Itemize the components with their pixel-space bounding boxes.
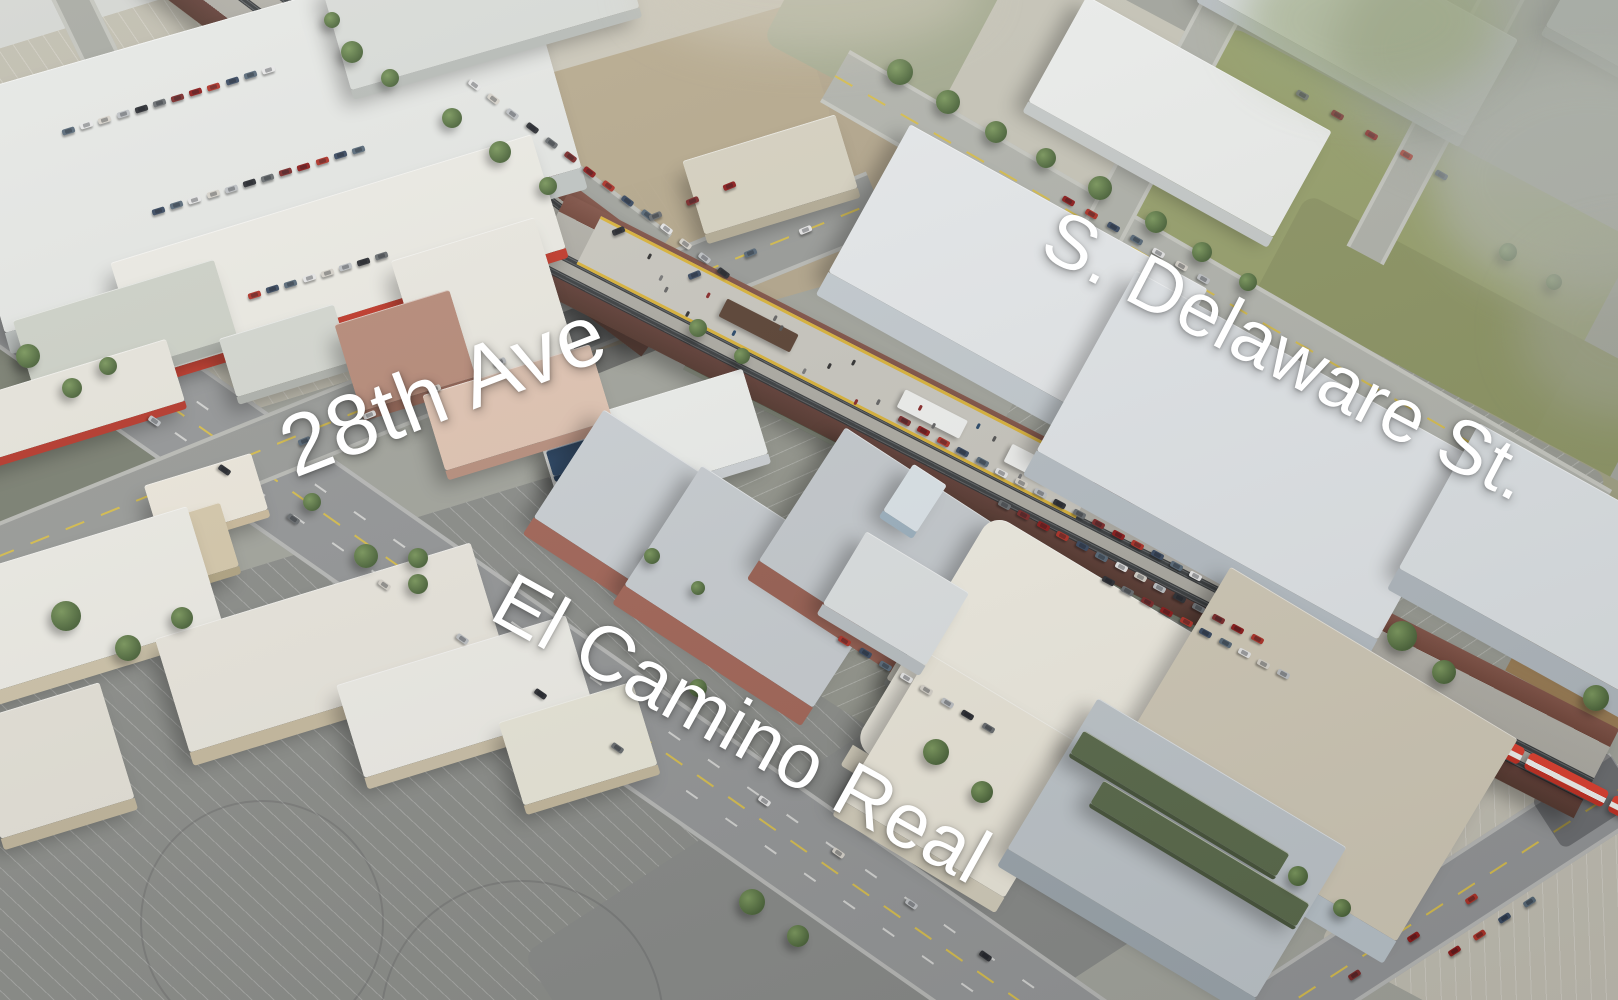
street-label-s-delaware-st: S. Delaware St. <box>1031 198 1545 514</box>
street-labels-layer: 28th Ave S. Delaware St. El Camino Real <box>0 0 1618 1000</box>
street-label-28th-ave: 28th Ave <box>269 289 617 491</box>
aerial-rendering: 28th Ave S. Delaware St. El Camino Real <box>0 0 1618 1000</box>
street-label-el-camino-real: El Camino Real <box>481 560 1002 896</box>
